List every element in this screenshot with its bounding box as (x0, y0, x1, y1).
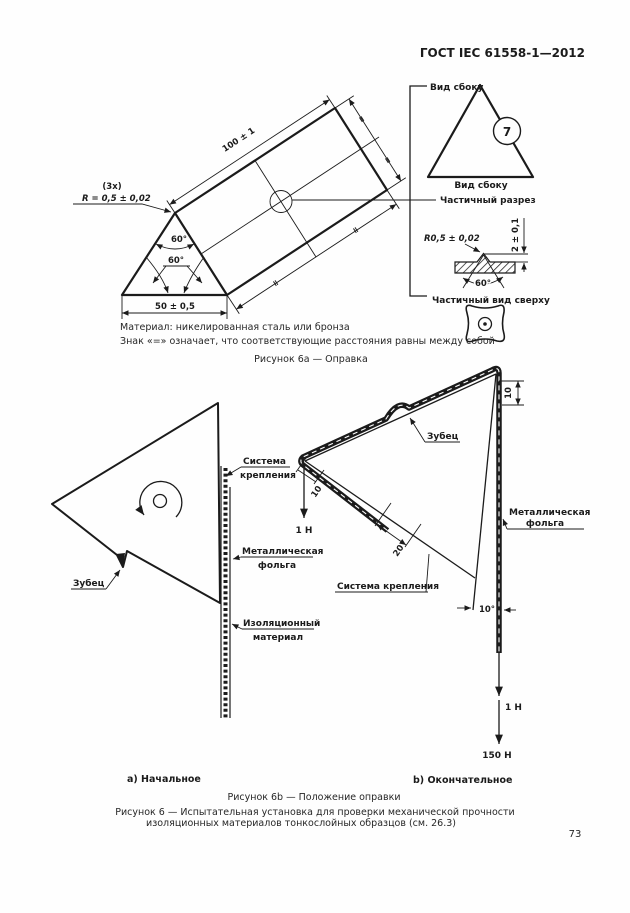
partial-section-label: Частичный разрез (440, 196, 536, 206)
force-small-label: 1 Н (505, 703, 522, 713)
section-angle: 60° (475, 279, 491, 289)
mandrel-drawing: 100 ± 1 = = = = 50 ± 0,5 60° 60° (3x) R … (73, 96, 436, 320)
equal-mark: = (355, 114, 367, 125)
fastening-label: Система крепления (337, 582, 439, 592)
foil-label-line1: Металлическая (509, 508, 591, 518)
foil-label-line1: Металлическая (242, 547, 324, 557)
section-radius-label: R0,5 ± 0,02 (424, 234, 480, 244)
tooth-label: Зубец (427, 431, 459, 442)
partial-top-view-label: Частичный вид сверху (432, 296, 550, 306)
detail-marker: 7 (503, 125, 511, 139)
fastening-label-line1: Система (243, 457, 286, 467)
dim-base: 50 ± 0,5 (155, 302, 195, 312)
force-initial-label: 1 Н (296, 526, 313, 536)
mandrel-outline (52, 403, 220, 603)
angle-base: 60° (168, 256, 184, 266)
force-large-label: 150 Н (482, 751, 511, 761)
side-views-panel: Вид сбоку 7 Вид сбоку Частичный разрез R… (410, 82, 550, 342)
dim-top: 10 (504, 387, 514, 399)
radius-qty: (3x) (102, 182, 121, 192)
figure-initial: Зубец Система крепления Металлическая фо… (52, 403, 324, 718)
section-height: 2 ± 0,1 (511, 218, 521, 252)
angle-apex: 60° (171, 235, 187, 245)
caption-final: b) Окончательное (413, 775, 512, 786)
centerline-cross (255, 161, 316, 258)
figure6b-caption: Рисунок 6b — Положение оправки (227, 792, 400, 803)
page-header: ГОСТ IEC 61558-1—2012 (420, 46, 585, 60)
figure6-caption-line2: изоляционных материалов тонкослойных обр… (146, 818, 456, 829)
page-canvas: ГОСТ IEC 61558-1—2012 100 ± 1 = = = = 50 (0, 0, 630, 913)
figure-final: Зубец 10 10 1 Н 20 Система крепления Мет… (296, 369, 591, 761)
top-view-center-dot (483, 322, 487, 326)
dim-vertex: 10 (310, 484, 325, 499)
note-material: Материал: никелированная сталь или бронз… (120, 322, 350, 333)
page-number: 73 (569, 829, 582, 840)
equal-mark: = (381, 155, 393, 166)
insulation-label-line1: Изоляционный (243, 619, 320, 629)
foil-label-line2: фольга (526, 519, 564, 529)
document-page: ГОСТ IEC 61558-1—2012 100 ± 1 = = = = 50 (0, 0, 630, 913)
angle-final: 10° (479, 605, 495, 615)
mandrel-triangle-end (122, 213, 227, 295)
caption-initial: а) Начальное (127, 774, 201, 785)
views-bracket (410, 86, 427, 296)
tooth-label: Зубец (73, 578, 105, 589)
dim-clamp: 20 (392, 543, 407, 558)
foil-label-line2: фольга (258, 561, 296, 571)
section-profile (455, 254, 515, 274)
fastening-label-line2: крепления (240, 471, 296, 481)
rotation-axis-icon (154, 495, 167, 508)
foil-band (301, 369, 499, 653)
equal-mark: = (269, 278, 281, 289)
insulation-label-line2: материал (253, 633, 303, 643)
note-equal: Знак «=» означает, что соответствующие р… (120, 336, 495, 347)
figure6-caption-line1: Рисунок 6 — Испытательная установка для … (115, 807, 514, 818)
figure6a-caption: Рисунок 6а — Оправка (254, 354, 368, 365)
foil-band-centerline (301, 369, 499, 653)
radius-label: R = 0,5 ± 0,02 (82, 194, 151, 204)
view-side-bottom-label: Вид сбоку (454, 180, 507, 191)
